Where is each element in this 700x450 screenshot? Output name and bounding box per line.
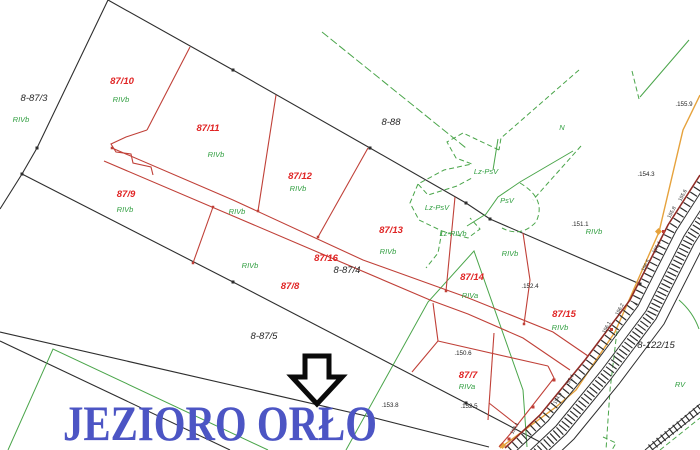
- district-label: 8-87/4: [334, 265, 361, 276]
- landuse-label: RIVb: [586, 227, 603, 236]
- landuse-label: RIVb: [13, 115, 30, 124]
- landuse-label: Lz-PsV: [425, 203, 450, 212]
- landuse-label: RIVb: [113, 95, 130, 104]
- landuse-label: RIVb: [208, 150, 225, 159]
- parcel-label: 87/7: [459, 370, 478, 381]
- landuse-label: PsV: [500, 196, 515, 205]
- parcel-label: 87/12: [288, 171, 312, 182]
- parcel-label: 87/8: [281, 281, 300, 292]
- landuse-label: RIVa: [459, 382, 475, 391]
- district-label: 8-87/5: [251, 331, 279, 342]
- map-background: [0, 0, 700, 450]
- parcel-label: 87/15: [552, 309, 576, 320]
- landuse-label: Lz-PsV: [474, 167, 499, 176]
- landuse-label: RIVb: [290, 184, 307, 193]
- district-label: 8-88: [381, 117, 401, 128]
- elevation-label: .152.4: [521, 283, 539, 290]
- elevation-label: .155.9: [675, 101, 693, 108]
- landuse-label: RV: [675, 380, 686, 389]
- elevation-label: .152.5: [460, 403, 478, 410]
- parcel-label: 87/9: [117, 189, 136, 200]
- elevation-label: .154.3: [637, 171, 655, 178]
- parcel-label: 87/14: [460, 272, 484, 283]
- district-label: 8-87/3: [21, 93, 49, 104]
- parcel-label: 87/16: [314, 253, 338, 264]
- elevation-label: .153.8: [381, 402, 399, 409]
- parcel-label: 87/11: [196, 123, 219, 134]
- landuse-label: RIVb: [552, 323, 569, 332]
- parcel-label: 87/13: [379, 225, 403, 236]
- rail-red-tick-1: [662, 230, 665, 233]
- elevation-label: .150.6: [454, 350, 472, 357]
- map-canvas: 87/10 87/11 87/12 87/13 87/9 87/16 87/8 …: [0, 0, 700, 450]
- landuse-label: N: [559, 123, 565, 132]
- rail-red-tick-2: [610, 328, 613, 331]
- landuse-label: RIVb: [117, 205, 134, 214]
- landuse-label: RIVb: [229, 207, 246, 216]
- landuse-label: RIVb: [502, 249, 519, 258]
- elevation-label: .151.1: [571, 221, 589, 228]
- landuse-label: RIVa: [462, 291, 478, 300]
- landuse-label: Lz-RIVb: [439, 229, 466, 238]
- cadastral-map: 87/10 87/11 87/12 87/13 87/9 87/16 87/8 …: [0, 0, 700, 450]
- parcel-label: 87/10: [110, 76, 134, 87]
- lake-title: JEZIORO ORŁO: [63, 395, 377, 450]
- landuse-label: RIVb: [380, 247, 397, 256]
- landuse-label: RIVb: [242, 261, 259, 270]
- district-label: 8-122/15: [637, 340, 675, 351]
